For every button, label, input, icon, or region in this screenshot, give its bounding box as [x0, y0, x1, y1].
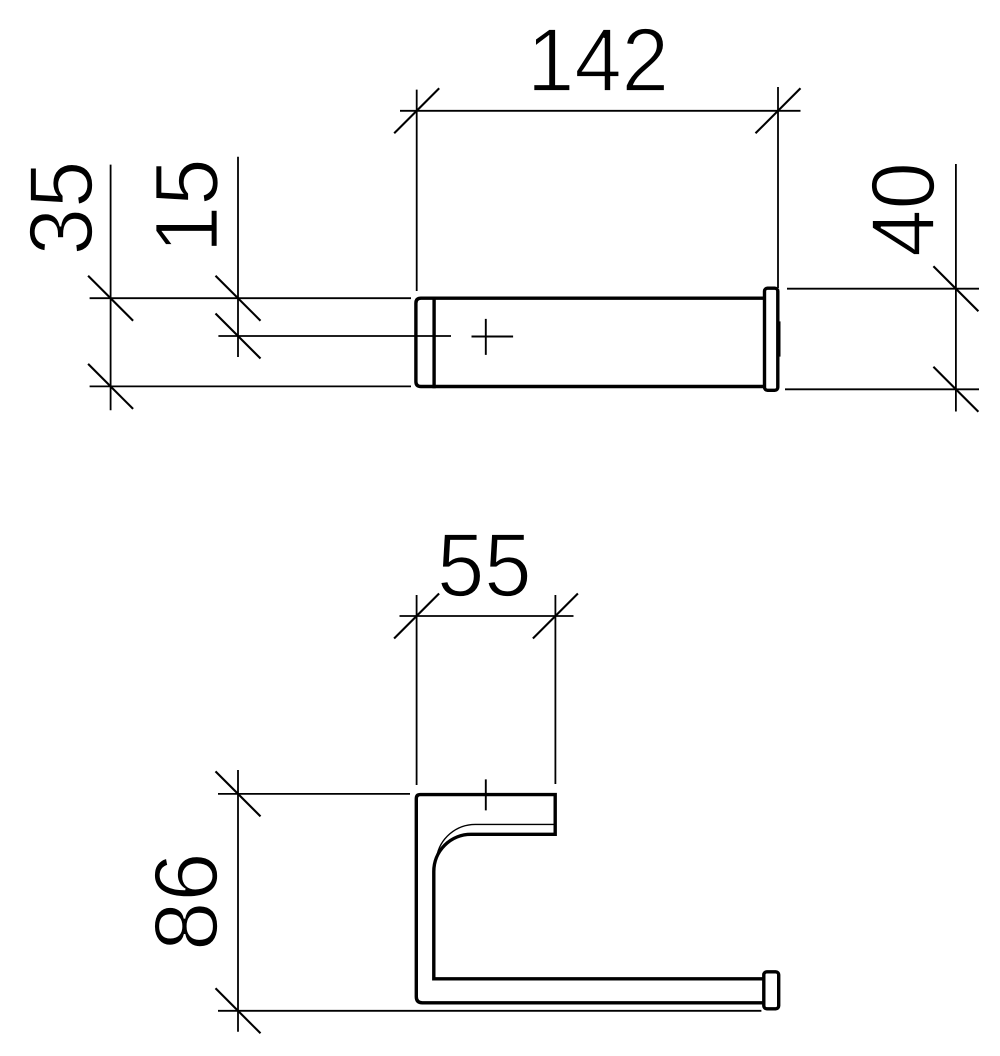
svg-text:55: 55	[437, 516, 532, 616]
svg-text:35: 35	[12, 161, 112, 256]
svg-text:15: 15	[138, 158, 238, 253]
svg-text:40: 40	[854, 162, 954, 257]
svg-text:142: 142	[527, 11, 669, 111]
svg-text:86: 86	[137, 852, 237, 951]
